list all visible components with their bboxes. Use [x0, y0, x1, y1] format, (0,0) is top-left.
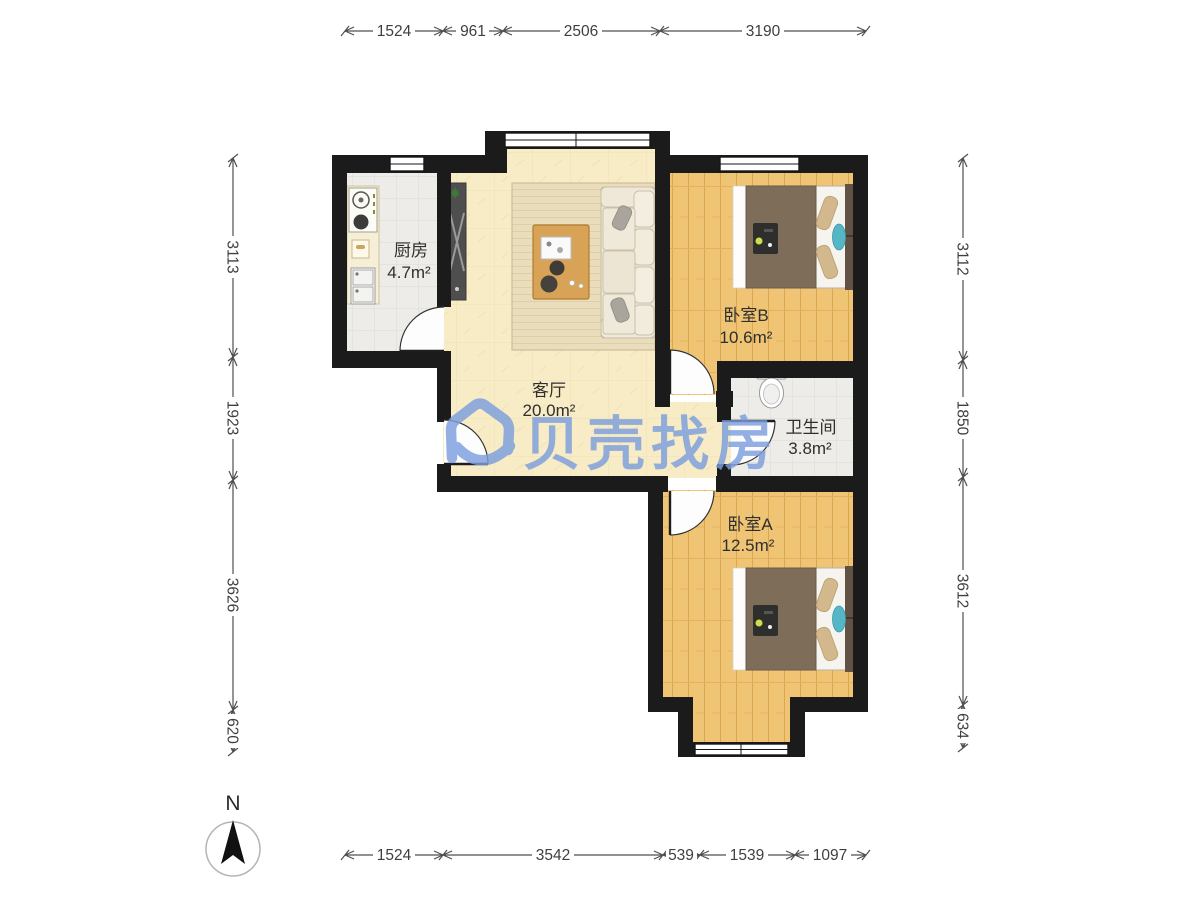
wall [332, 351, 451, 368]
kitchen-area: 4.7m² [387, 263, 431, 282]
kitchen-window [390, 157, 424, 171]
dim-top-4: 3190 [746, 23, 781, 40]
dim-right-2: 1850 [954, 401, 971, 436]
compass-north-label: N [225, 792, 240, 815]
wall [437, 155, 451, 307]
sofa-back-cushion [634, 267, 654, 303]
burner-center [359, 198, 364, 203]
wall [678, 697, 693, 757]
bed-b-headboard [845, 184, 853, 290]
dim-left-3: 3626 [224, 578, 241, 612]
kettle-2 [541, 276, 558, 293]
faucet-2 [355, 289, 358, 292]
board-handle [356, 245, 365, 249]
dim-top-1: 1524 [377, 23, 412, 40]
bathroom-label: 卫生间 [786, 418, 837, 437]
bathroom-area: 3.8m² [788, 439, 832, 458]
dim-bottom-4: 1539 [730, 847, 764, 864]
toilet-seat [764, 384, 780, 404]
dim-right-3: 3612 [954, 574, 971, 608]
dim-left-2: 1923 [224, 401, 241, 435]
dim-left-1: 3113 [224, 240, 241, 273]
bedroom-b-window [720, 157, 799, 171]
tray-item [547, 242, 552, 247]
tray-slot [764, 229, 773, 232]
compass: N [206, 792, 260, 876]
wall [853, 155, 868, 712]
bedroom-b-area: 10.6m² [720, 328, 773, 347]
wall [437, 368, 451, 422]
wall [648, 476, 663, 712]
cup-2 [579, 284, 583, 288]
bed-b-runner [733, 186, 746, 288]
bedroom-a-area: 12.5m² [722, 536, 775, 555]
tray-dot-white [768, 625, 772, 629]
kitchen-label: 厨房 [394, 241, 428, 260]
dim-bottom-2: 3542 [536, 847, 570, 864]
dim-top-2: 961 [460, 23, 486, 40]
kitchen-furniture [347, 186, 379, 304]
cabinet-knob [455, 287, 459, 291]
compass-needle [221, 820, 245, 864]
floorplan-canvas: 厨房 4.7m² 客厅 20.0m² 卧室B 10.6m² 卫生间 3.8m² … [0, 0, 1202, 900]
dim-right-1: 3112 [954, 242, 971, 275]
sofa-back-cushion [634, 305, 654, 335]
table-tray [541, 237, 571, 259]
tray-slot [764, 611, 773, 614]
wall [437, 476, 668, 492]
living-label: 客厅 [532, 381, 566, 400]
sofa-seat-cushion [603, 251, 635, 293]
floorplan-svg: 厨房 4.7m² 客厅 20.0m² 卧室B 10.6m² 卫生间 3.8m² … [0, 0, 1202, 900]
dimension-left: 3113 1923 3626 620 [224, 154, 244, 756]
cup-1 [570, 281, 575, 286]
bed-a-runner [733, 568, 746, 670]
dimension-top: 1524 961 2506 3190 [341, 22, 870, 40]
watermark-text: 贝壳找房 [523, 412, 779, 477]
dim-left-4: 620 [224, 718, 241, 744]
tray-dot-green [756, 238, 763, 245]
tray-dot-white [768, 243, 772, 247]
wall [332, 155, 347, 368]
stove-burner-bottom [354, 215, 369, 230]
bedroom-b-furniture [733, 184, 853, 290]
dim-top-3: 2506 [564, 23, 598, 40]
living-window [505, 133, 650, 147]
dim-bottom-5: 1097 [813, 847, 847, 864]
dim-right-4: 634 [954, 713, 971, 739]
sofa-back-cushion [634, 229, 654, 265]
wall [790, 697, 805, 757]
dimension-bottom: 1524 3542 539 1539 1097 [341, 846, 870, 864]
bedroom-a-label: 卧室A [727, 515, 773, 534]
bed-b-round-pillow [833, 224, 846, 250]
dim-bottom-1: 1524 [377, 847, 412, 864]
sofa-back-cushion [634, 191, 654, 227]
tray-dot-green [756, 620, 763, 627]
wall [437, 464, 451, 478]
bay-window [695, 744, 788, 755]
bedroom-b-label: 卧室B [723, 306, 768, 325]
wall [717, 361, 868, 378]
sink-basin-1 [353, 270, 373, 285]
wall [655, 131, 670, 407]
bed-a-headboard [845, 566, 853, 672]
tray-item [557, 247, 563, 253]
wall [716, 476, 868, 492]
bedroom-a-furniture [733, 566, 853, 672]
kettle-1 [550, 261, 565, 276]
faucet-1 [355, 272, 358, 275]
sink-basin-2 [353, 287, 373, 302]
dimension-right: 3112 1850 3612 634 [954, 154, 974, 752]
bed-a-round-pillow [833, 606, 846, 632]
dim-bottom-3: 539 [668, 847, 694, 864]
